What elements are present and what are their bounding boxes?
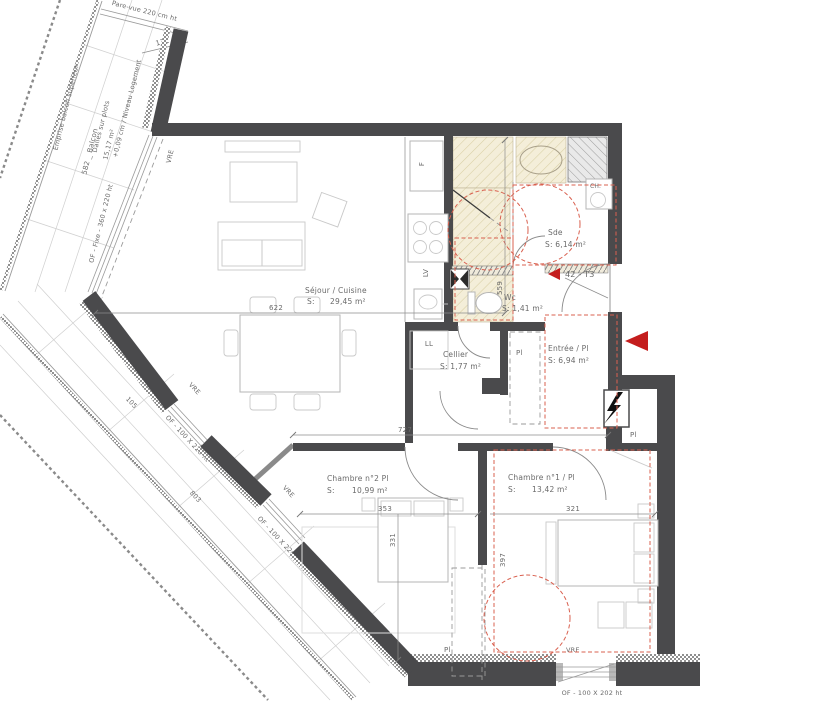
wall-entree-stub	[606, 426, 622, 451]
emprise-line	[0, 0, 60, 178]
wall-right-below-door	[608, 312, 622, 392]
water-heater-label: CH.	[590, 183, 601, 190]
dim-331: 331	[389, 533, 397, 547]
dining-table-icon	[240, 315, 340, 392]
wall-insulation	[410, 654, 556, 663]
wall-diag-1	[89, 296, 172, 405]
chambre2-door-arc	[405, 447, 458, 500]
closet-label: Pl	[444, 646, 451, 654]
room-sejour-name: Séjour / Cuisine	[305, 286, 367, 295]
sofa-cushion	[262, 240, 302, 266]
wall-stub	[482, 378, 500, 394]
cellier-door-arc	[440, 391, 478, 429]
closet-door-leaf	[610, 450, 652, 468]
floorplan-canvas: Emprise balcon supérieur 582 _ Balcon Da…	[0, 0, 840, 701]
dim-622: 622	[269, 304, 283, 312]
window-fixe-label: OF - Fixe - 360 x 220 ht	[87, 183, 114, 264]
shower-zone	[453, 137, 513, 188]
room-chambre2-name: Chambre n°2 Pl	[327, 474, 389, 483]
wall-bottom-left	[408, 662, 556, 686]
window-of-c-label: OF - 100 X 202 ht	[562, 689, 623, 697]
corner-window	[253, 445, 293, 481]
wall-bedrooms-top-a	[293, 443, 405, 451]
unit-annotation: 42 - T3	[548, 268, 648, 351]
chambre1-turning-circle	[484, 575, 570, 661]
dim-105: 105	[124, 395, 139, 410]
wall-bottom-right	[616, 662, 700, 686]
room-entree-name: Entrée / Pl	[548, 344, 589, 353]
sink-icon	[414, 289, 442, 319]
side-table-icon	[312, 192, 347, 227]
nightstand-icon	[638, 589, 654, 603]
dim-559: 559	[496, 281, 504, 295]
room-entree-area: S: 6,94 m²	[548, 356, 589, 365]
vre-label: VRE	[187, 381, 202, 396]
leader-line	[565, 278, 608, 298]
bottom-window: VRE OF - 100 X 202 ht	[556, 646, 623, 697]
duct-shaft	[568, 137, 607, 182]
console-icon	[225, 141, 300, 152]
room-sejour-area: 29,45 m²	[330, 297, 366, 306]
closet-label: Pl	[630, 431, 637, 439]
vre-label: VRE	[566, 646, 580, 654]
wall-right-lower	[657, 384, 675, 686]
nightstand-icon	[638, 504, 654, 518]
dim-397: 397	[499, 553, 507, 567]
room-chambre1-area: 13,42 m²	[532, 485, 568, 494]
balcony-railing-checker	[1, 0, 98, 290]
chair-icon	[342, 330, 356, 356]
wall-cellier-right	[500, 327, 508, 395]
chair-icon	[294, 394, 320, 410]
balcony-railing-checker	[1, 317, 353, 699]
sde-door-arc	[513, 236, 545, 268]
wall-mid-b	[490, 322, 545, 331]
balcony-railing	[3, 314, 356, 697]
balcony-emprise-label: Emprise balcon supérieur	[52, 64, 81, 151]
room-chambre1-name: Chambre n°1 / Pl	[508, 473, 575, 482]
room-chambre2-s: S:	[327, 486, 335, 495]
chair-icon	[224, 330, 238, 356]
vre-label: VRE	[281, 484, 296, 499]
nightstand-icon	[362, 498, 375, 511]
fridge-label: F	[418, 162, 426, 166]
wall-diag-2	[206, 441, 266, 500]
dim-803: 803	[188, 489, 203, 504]
balcony-level-label: +0,09 cm / Niveau Logement	[111, 58, 143, 158]
window-of-a-glazing	[168, 410, 204, 449]
sofa-cushion	[222, 240, 262, 266]
room-wc-name: Wc	[504, 293, 516, 302]
unit-label: 42 - T3	[565, 270, 595, 279]
dishwasher-label: LV	[422, 269, 430, 277]
wall-cellier-left	[405, 322, 413, 443]
bed-icon	[558, 520, 658, 586]
window-of-c-opening	[556, 660, 616, 687]
room-cellier-area: S: 1,77 m²	[440, 362, 481, 371]
wall-top	[152, 123, 622, 136]
kitchen: F LV	[408, 141, 448, 319]
sofa-icon	[218, 222, 305, 270]
coffee-table-icon	[230, 162, 297, 202]
floorplan-drawing: Emprise balcon supérieur 582 _ Balcon Da…	[0, 0, 840, 701]
wardrobe-icon	[626, 602, 652, 628]
wall-insulation	[616, 654, 700, 663]
room-cellier-name: Cellier	[443, 350, 469, 359]
bench-icon	[546, 522, 556, 584]
washing-machine-label: LL	[425, 340, 433, 348]
toilet-tank-icon	[468, 292, 475, 314]
entree-closet	[510, 332, 540, 424]
room-sde-area: S: 6,14 m²	[545, 240, 586, 249]
wall-insulation	[82, 302, 165, 411]
room-wc-area: S: 1,41 m²	[502, 304, 543, 313]
vre-label: VRE	[165, 149, 176, 164]
walls	[82, 27, 700, 686]
wall-between-bedrooms	[478, 443, 487, 565]
wet-zones	[453, 137, 607, 322]
room-chambre2-area: 10,99 m²	[352, 486, 388, 495]
entrance-arrow-icon	[625, 331, 648, 351]
room-sde-name: Sde	[548, 228, 563, 237]
cooktop-icon	[408, 214, 448, 262]
room-sejour-s: S:	[307, 297, 315, 306]
sde-turning-circle	[500, 184, 580, 264]
dim-353: 353	[378, 505, 392, 513]
vre-dashed-line	[102, 139, 163, 296]
wall-bedrooms-top-b	[458, 443, 553, 451]
basin-zone	[516, 137, 566, 183]
fridge-icon	[410, 141, 443, 191]
dim-727: 727	[398, 426, 412, 434]
dim-321: 321	[566, 505, 580, 513]
sejour-furniture	[218, 141, 356, 410]
wardrobe-icon	[598, 602, 624, 628]
chair-icon	[250, 394, 276, 410]
room-chambre1-s: S:	[508, 485, 516, 494]
closet-label: Pl	[516, 349, 523, 357]
chambre1-furniture	[546, 504, 658, 628]
